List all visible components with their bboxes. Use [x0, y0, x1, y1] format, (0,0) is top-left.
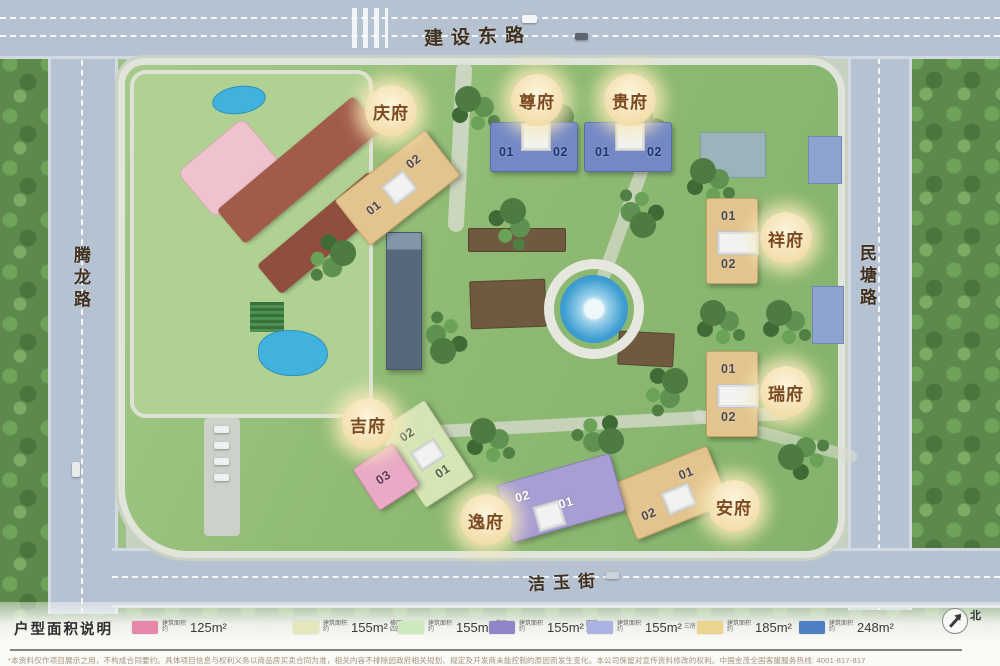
building-core	[521, 123, 551, 151]
unit-label[interactable]: 02	[553, 145, 568, 159]
parking-strip	[204, 418, 240, 536]
unit-label[interactable]: 01	[557, 494, 575, 512]
site-plan: 01 02 01 02 01 02 01 02 01 02 01 02 02 0…	[0, 0, 1000, 666]
pavilion	[468, 228, 566, 252]
lane-marking	[878, 48, 880, 610]
legend-area: 155m²	[547, 620, 584, 635]
legend-prefix: 建筑面积约	[617, 621, 643, 634]
legend-swatch	[697, 621, 723, 634]
unit-label[interactable]: 01	[721, 362, 736, 376]
car	[575, 33, 588, 40]
legend-swatch	[132, 621, 158, 634]
plot-badge-ruifu[interactable]: 瑞府	[760, 366, 812, 418]
tree-grove	[700, 300, 726, 326]
unit-label[interactable]: 01	[721, 209, 736, 223]
side-building	[808, 136, 842, 184]
hedge-maze	[250, 302, 284, 332]
legend-swatch	[398, 621, 424, 634]
plot-badge-yifu[interactable]: 逸府	[460, 494, 512, 546]
unit-label[interactable]: 02	[403, 151, 423, 171]
plot-badge-anfu[interactable]: 安府	[708, 480, 760, 532]
legend-area: 185m²	[755, 620, 792, 635]
disclaimer-text: *本资料仅作项目展示之用，不构成合同要约。具体项目信息与权利义务以商品房买卖合同…	[8, 655, 993, 666]
plot-badge-zunfu[interactable]: 尊府	[511, 74, 563, 126]
parked-car	[214, 474, 229, 481]
legend-prefix: 建筑面积约	[519, 621, 545, 634]
legend-swatch	[293, 621, 319, 634]
compass-icon	[942, 608, 968, 634]
trees-left	[0, 0, 48, 666]
legend-title: 户型面积说明	[14, 618, 113, 639]
legend-area: 155m²	[456, 620, 493, 635]
unit-label[interactable]: 01	[595, 145, 610, 159]
unit-label[interactable]: 02	[513, 488, 531, 506]
legend-item: 建筑面积约 155m² 四房 边套	[489, 619, 598, 635]
plot-badge-xiangfu[interactable]: 祥府	[760, 212, 812, 264]
unit-label[interactable]: 02	[397, 425, 417, 445]
legend-item: 建筑面积约 248m²	[799, 619, 896, 635]
building-core	[717, 231, 759, 255]
plot-badge-qingfu[interactable]: 庆府	[365, 85, 417, 137]
legend-prefix: 建筑面积约	[829, 621, 855, 634]
tree-grove	[690, 158, 716, 184]
tower-slab	[386, 232, 422, 370]
building-core	[660, 482, 697, 515]
tree-grove	[470, 418, 496, 444]
plot-badge-guifu[interactable]: 贵府	[604, 74, 656, 126]
tree-grove	[455, 86, 481, 112]
unit-label[interactable]: 02	[639, 505, 658, 524]
tree-grove	[766, 300, 792, 326]
legend-note: 三房	[684, 624, 696, 631]
legend-area: 125m²	[190, 620, 227, 635]
street-label-top: 建设东路	[424, 20, 533, 51]
legend-item: 建筑面积约 125m²	[132, 619, 229, 635]
pavilion	[469, 279, 547, 330]
building-core	[615, 123, 645, 151]
building-guifu: 01 02	[584, 122, 672, 172]
legend-prefix: 建筑面积约	[428, 621, 454, 634]
legend-area: 155m²	[645, 620, 682, 635]
legend-swatch	[489, 621, 515, 634]
legend-swatch	[587, 621, 613, 634]
unit-label[interactable]: 02	[721, 410, 736, 424]
legend-area: 248m²	[857, 620, 894, 635]
plot-badge-jifu[interactable]: 吉府	[342, 398, 394, 450]
compass-north-label: 北	[970, 607, 981, 623]
unit-label[interactable]: 01	[677, 464, 696, 483]
legend-swatch	[799, 621, 825, 634]
car	[606, 572, 619, 579]
unit-label[interactable]: 01	[363, 198, 383, 218]
legend-item: 建筑面积约 155m² 横厅 四房	[293, 619, 402, 635]
street-label-bottom: 洁玉街	[527, 566, 603, 595]
unit-label[interactable]: 01	[433, 461, 453, 481]
legend-bar: 户型面积说明 建筑面积约 125m² 建筑面积约 155m² 横厅 四房 建筑面…	[0, 602, 1000, 666]
legend-prefix: 建筑面积约	[323, 621, 349, 634]
parked-car	[214, 442, 229, 449]
crosswalk	[352, 8, 388, 48]
fountain-center	[584, 299, 604, 319]
building-core	[717, 384, 759, 408]
building-zunfu: 01 02	[490, 122, 578, 172]
pool-south	[258, 330, 328, 376]
lane-marking	[0, 17, 1000, 19]
side-building	[812, 286, 844, 344]
building-xiangfu: 01 02	[706, 198, 758, 284]
legend-item: 建筑面积约 155m² 三房	[587, 619, 696, 635]
building-core	[381, 170, 418, 206]
street-label-left: 腾龙路	[68, 246, 93, 312]
unit-label[interactable]: 02	[647, 145, 662, 159]
legend-prefix: 建筑面积约	[727, 621, 753, 634]
building-ruifu: 01 02	[706, 351, 758, 437]
unit-label[interactable]: 03	[373, 468, 393, 488]
parked-car	[214, 426, 229, 433]
street-label-right: 民塘路	[854, 244, 879, 310]
unit-label[interactable]: 02	[721, 257, 736, 271]
legend-prefix: 建筑面积约	[162, 621, 188, 634]
legend-item: 建筑面积约 185m²	[697, 619, 794, 635]
legend-divider	[10, 649, 962, 651]
unit-label[interactable]: 01	[499, 145, 514, 159]
compass-needle-icon	[949, 615, 961, 628]
parked-car	[214, 458, 229, 465]
legend-area: 155m²	[351, 620, 388, 635]
car	[72, 462, 80, 477]
road-mintang	[848, 48, 912, 610]
